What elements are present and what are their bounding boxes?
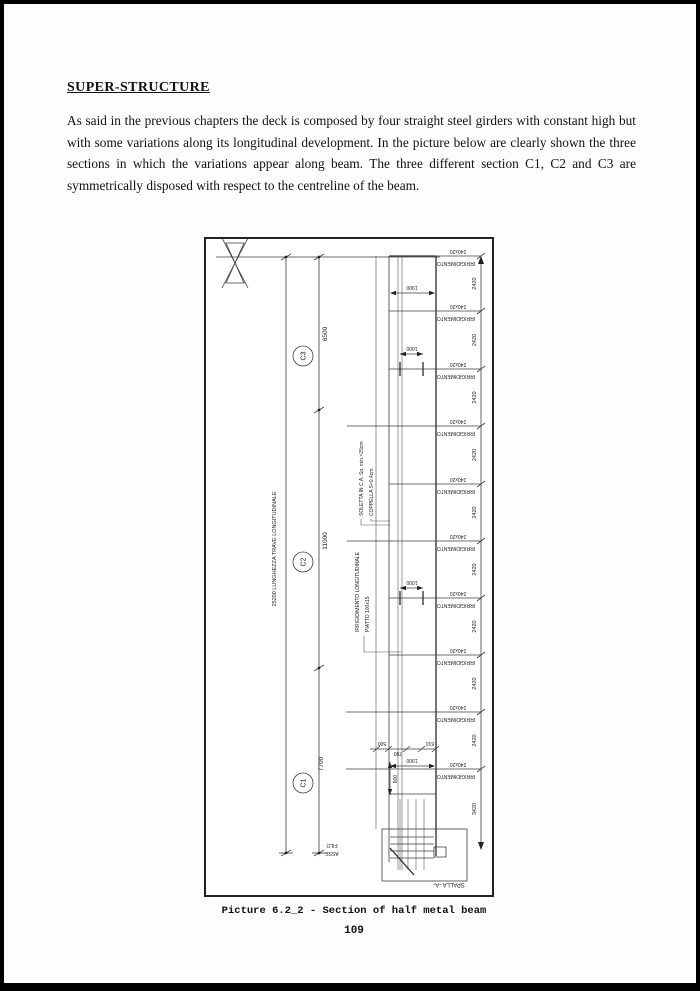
- page-number: 109: [4, 925, 696, 937]
- stiffener-name-label: IRRIGIDIMENTO: [437, 373, 475, 379]
- dim-hole-spacing-1: 1000: [400, 345, 423, 376]
- total-length-label: 25200 LUNGHEZZA TRAVE LONGITUDINALE: [272, 491, 278, 606]
- section-c3: 6500 C3: [293, 326, 329, 366]
- annotation-filo-asse: ASSE FILO: [325, 842, 339, 856]
- dim-1000-lower: 1000: [406, 579, 417, 585]
- spacing-dim-label: 2420: [472, 334, 478, 346]
- stiffener-name-label: IRRIGIDIMENTO: [437, 773, 475, 779]
- beam-outline: [376, 256, 436, 870]
- stiffener-name-label: IRRIGIDIMENTO: [437, 716, 475, 722]
- stiffener-name-label: IRRIGIDIMENTO: [437, 260, 475, 266]
- dim-line-spacing: [478, 256, 484, 850]
- spacing-dim-label: 2420: [472, 391, 478, 403]
- stiffener-size-label: 240x20: [450, 647, 467, 653]
- spacing-dim-label: 2420: [472, 449, 478, 461]
- spacing-dim-label: 2420: [472, 506, 478, 518]
- stiffener-size-label: 240x20: [450, 761, 467, 767]
- stiffener-size-label: 240x20: [450, 476, 467, 482]
- dim-790: 790: [394, 750, 403, 756]
- dim-1900-top: 1900: [406, 284, 417, 290]
- figure-caption: Picture 6.2_2 - Section of half metal be…: [4, 905, 696, 917]
- soletta-text: SOLETTA IN C.A. Sp. min.=25cm: [359, 441, 365, 516]
- stiffener-group: 240x20IRRIGIDIMENTO2420240x20IRRIGIDIMEN…: [346, 248, 485, 815]
- stiffener-name-label: IRRIGIDIMENTO: [437, 488, 475, 494]
- dim-800-text: 800: [393, 775, 399, 784]
- stiffener-size-label: 240x20: [450, 590, 467, 596]
- label-c2: C2: [301, 557, 308, 566]
- beam-drawing: 25200 LUNGHEZZA TRAVE LONGITUDINALE 6500…: [206, 239, 492, 895]
- piatto-text: PIATTO 100x15: [365, 596, 371, 632]
- dim-1000-upper: 1000: [406, 345, 417, 351]
- label-c3: C3: [301, 351, 308, 360]
- stiffener-name-label: IRRIGIDIMENTO: [437, 602, 475, 608]
- stiffener-size-label: 240x20: [450, 533, 467, 539]
- dim-11000: 11000: [322, 532, 329, 550]
- spalla-label: SPALLA -A-: [433, 881, 465, 887]
- dim-bottom-chain: 500 790 610: [370, 740, 439, 756]
- dim-bottom-width: 1900: [390, 757, 435, 768]
- stiffener-name-label: IRRIGIDIMENTO: [437, 545, 475, 551]
- stiffener-size-label: 240x20: [450, 704, 467, 710]
- dim-500: 500: [378, 740, 387, 746]
- dim-hole-spacing-2: 1000: [400, 579, 423, 605]
- stiffener-name-label: IRRIGIDIMENTO: [437, 315, 475, 321]
- spacing-dim-label: 2420: [472, 734, 478, 746]
- stiffener-size-label: 240x20: [450, 303, 467, 309]
- section-heading: SUPER-STRUCTURE: [67, 80, 210, 96]
- dim-top-width: 1900: [390, 284, 435, 295]
- irrig-long-text: IRRIGIDIMENTO LONGITUDINALE: [355, 551, 361, 632]
- spacing-dim-label: 2420: [472, 277, 478, 289]
- spacing-dim-label: 2420: [472, 563, 478, 575]
- stiffener-name-label: IRRIGIDIMENTO: [437, 430, 475, 436]
- stiffener-name-label: IRRIGIDIMENTO: [437, 659, 475, 665]
- section-c2: 11000 C2: [293, 532, 329, 572]
- spacing-dim-label: 2420: [472, 620, 478, 632]
- coppella-text: COPPELLA S=0.4cm: [369, 469, 375, 516]
- body-paragraph: As said in the previous chapters the dec…: [67, 110, 636, 196]
- figure-frame: 25200 LUNGHEZZA TRAVE LONGITUDINALE 6500…: [204, 237, 494, 897]
- label-c1: C1: [301, 778, 308, 787]
- dim-1900-bottom: 1900: [406, 757, 417, 763]
- dim-line-total: 25200 LUNGHEZZA TRAVE LONGITUDINALE: [272, 254, 293, 856]
- annotation-coppella: COPPELLA S=0.4cm: [369, 469, 390, 521]
- section-c1: 7700 C1: [293, 756, 325, 793]
- annotation-irrig-long: IRRIGIDIMENTO LONGITUDINALE PIATTO 100x1…: [355, 551, 401, 652]
- centreline-axis-icon: [222, 239, 248, 288]
- stiffener-size-label: 240x20: [450, 248, 467, 254]
- abutment: [382, 799, 467, 881]
- dim-610: 610: [426, 740, 435, 746]
- stiffener-size-label: 240x20: [450, 361, 467, 367]
- document-page: SUPER-STRUCTURE As said in the previous …: [4, 4, 696, 983]
- asse-text: ASSE: [325, 850, 339, 856]
- dim-6500: 6500: [322, 326, 329, 341]
- spacing-dim-label: 3420: [472, 803, 478, 815]
- filo-text: FILO: [326, 842, 337, 848]
- spacing-dim-label: 2420: [472, 677, 478, 689]
- stiffener-size-label: 240x20: [450, 418, 467, 424]
- dim-7700: 7700: [318, 756, 325, 771]
